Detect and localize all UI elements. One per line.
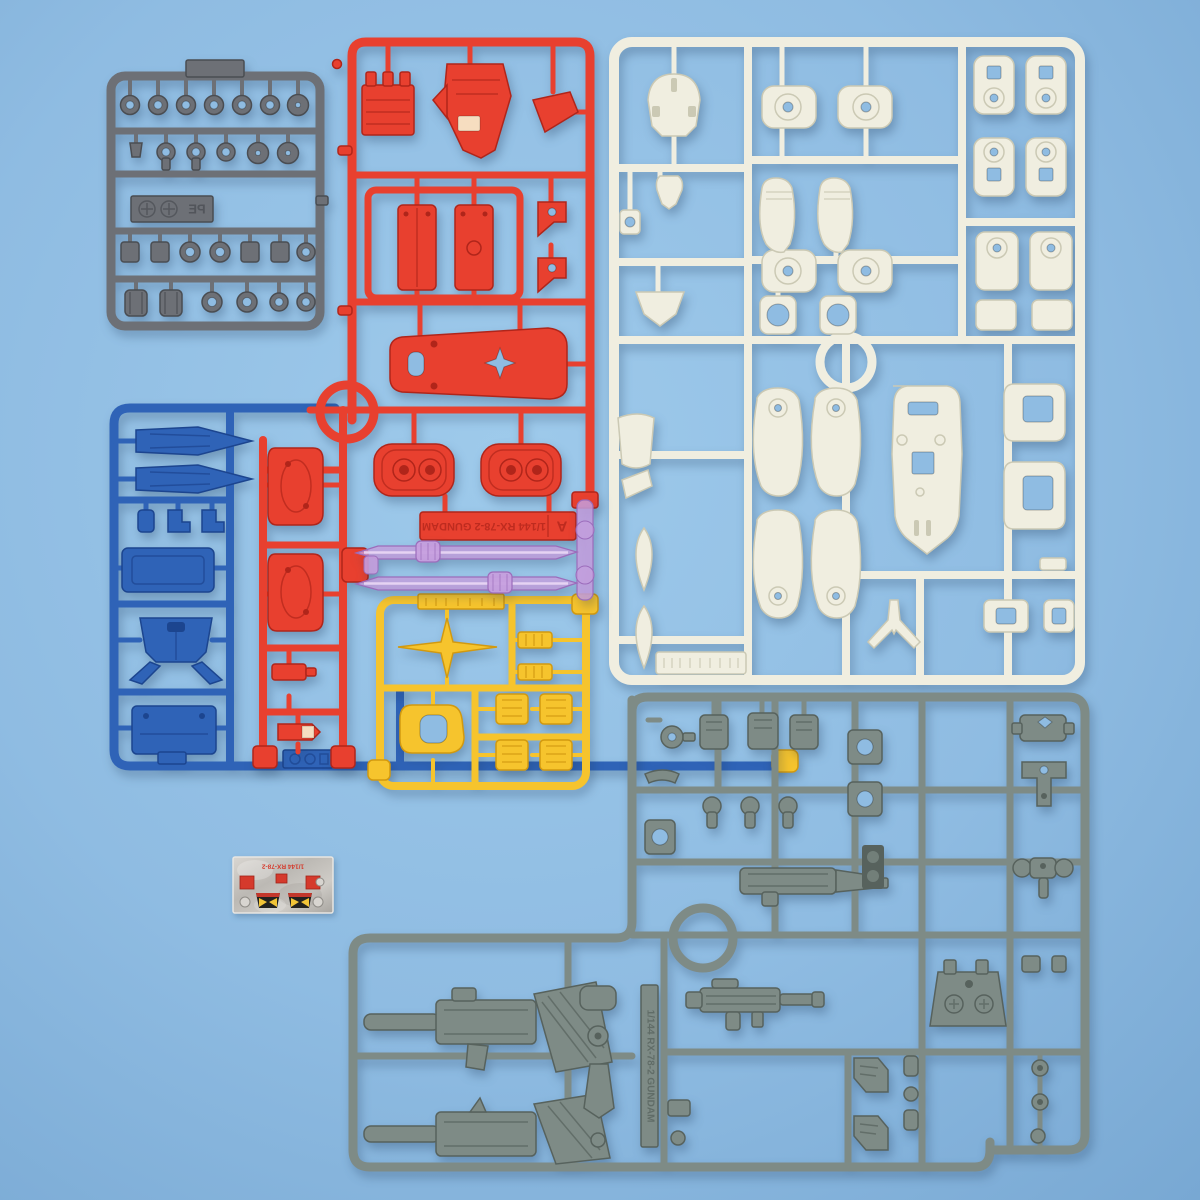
gray-beam-rifle-half <box>364 1094 610 1164</box>
polycap-runner: PE <box>111 60 328 326</box>
white-fin-part <box>636 606 652 668</box>
gray-hand-parts <box>854 1056 918 1150</box>
polycap-code-tag <box>186 60 244 77</box>
white-runner-tag <box>656 652 746 674</box>
clear-connector-nub <box>364 556 378 574</box>
sticker-sheet-header: 1/144 RX-78-2 <box>261 863 304 870</box>
white-shield-backing-part <box>892 386 962 554</box>
red-chest-part <box>433 64 511 158</box>
yellow-vent-parts <box>496 694 572 770</box>
white-head-part <box>648 74 700 136</box>
pe-label: PE <box>188 202 206 217</box>
white-fin-part <box>636 528 652 590</box>
blue-chest-duct-parts <box>136 427 252 493</box>
red-wing-part <box>533 92 578 132</box>
red-tag-text: 1/144 RX-78-2 GUNDAM <box>422 520 546 532</box>
gray-backpack-part <box>930 960 1006 1026</box>
yellow-tag <box>418 594 504 609</box>
white-runner <box>614 42 1080 680</box>
yellow-eye-visor-part <box>400 705 464 753</box>
white-shoulder-armor-parts <box>976 232 1072 330</box>
polycap-row-3 <box>121 231 315 262</box>
pe-material-tag: PE <box>131 196 213 222</box>
white-face-part <box>656 176 682 209</box>
white-wedge-part <box>622 470 652 498</box>
gray-right-column-parts <box>1012 715 1074 898</box>
yellow-runner <box>368 594 798 786</box>
white-backpack-plates <box>984 558 1074 632</box>
photo-stage: PE <box>0 0 1200 1200</box>
white-crotch-part <box>636 292 684 326</box>
white-thigh-parts <box>760 178 853 252</box>
red-foot-parts <box>268 448 323 631</box>
polycap-row-2 <box>130 131 299 170</box>
blue-joint-parts <box>138 510 224 532</box>
eye-sticker <box>256 893 280 908</box>
blue-runner-tag <box>283 750 333 768</box>
gray-gate-block <box>862 845 884 889</box>
white-skirt-plate <box>618 414 654 468</box>
white-v-fin-part <box>868 600 920 648</box>
polycap-row-1 <box>121 80 309 116</box>
red-shield-part <box>390 328 567 399</box>
gray-joint-parts-upper <box>645 713 818 854</box>
blue-panel-part <box>122 548 214 592</box>
yellow-v-fin-antenna-part <box>398 618 497 678</box>
blue-torso-part <box>130 618 222 684</box>
beam-saber-blade <box>356 541 577 562</box>
polycap-side-nub <box>316 196 328 205</box>
yellow-thruster-parts <box>518 632 552 680</box>
yellow-corner-connector <box>368 760 390 780</box>
red-runner-tag: 1/144 RX-78-2 GUNDAM A <box>420 512 576 540</box>
sticker-sheet: 1/144 RX-78-2 <box>233 857 333 913</box>
polycap-row-4 <box>125 279 315 316</box>
white-forearm-parts <box>974 56 1066 196</box>
blue-waist-part <box>132 706 216 764</box>
red-core-fighter-part <box>362 72 414 135</box>
gray-tag-text: 1/144 RX-78-2 GUNDAM <box>645 1010 656 1123</box>
gray-machine-gun-part <box>686 979 824 1030</box>
gray-runner-tag: 1/144 RX-78-2 GUNDAM <box>641 985 658 1147</box>
red-skirt-armor-parts <box>398 205 493 290</box>
eye-sticker <box>288 893 312 908</box>
beam-saber-blade <box>356 572 577 593</box>
white-bracket-part <box>620 210 640 234</box>
red-foot-sole-parts <box>374 444 561 496</box>
white-knee-parts <box>760 296 856 334</box>
gunpla-runners-photo: PE <box>0 0 1200 1200</box>
red-tag-letter: A <box>556 518 567 535</box>
white-foot-parts <box>1004 384 1065 529</box>
clear-runner-stem <box>576 500 594 600</box>
